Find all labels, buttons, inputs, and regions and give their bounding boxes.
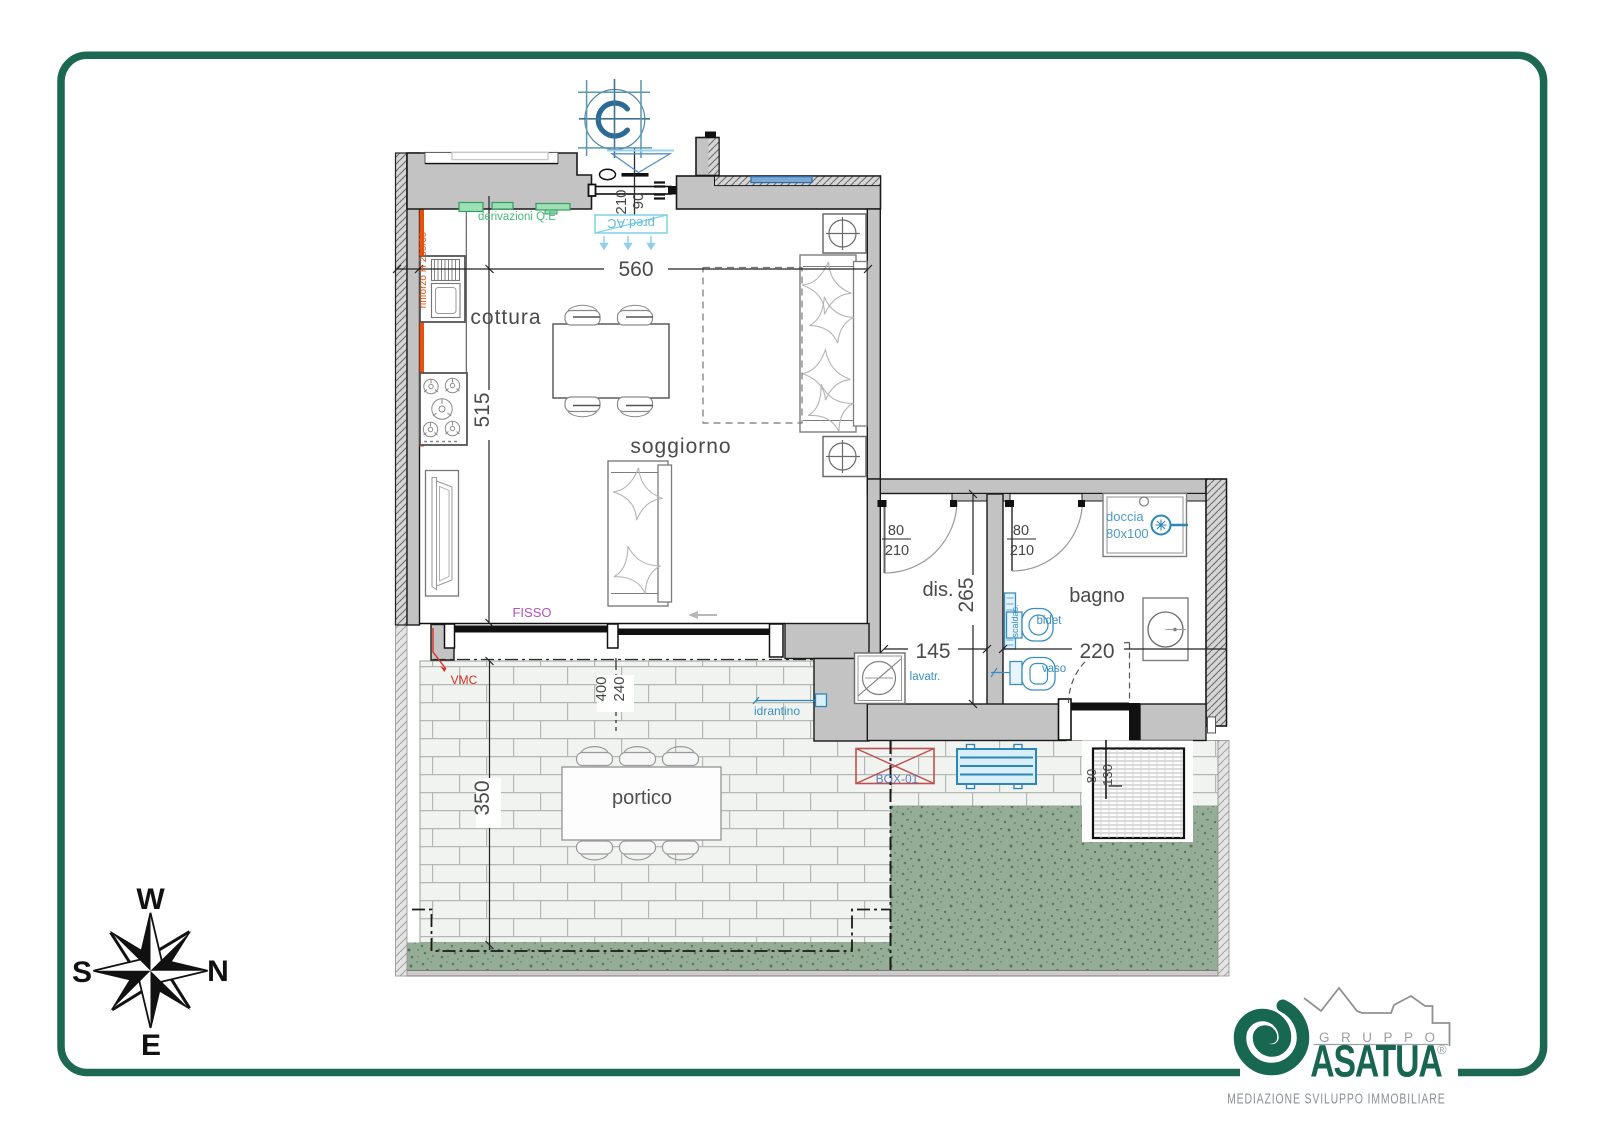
svg-text:80: 80 [1084, 769, 1099, 783]
svg-text:doccia: doccia [1106, 509, 1144, 524]
svg-text:560: 560 [618, 258, 653, 281]
svg-text:BOX-01: BOX-01 [876, 772, 919, 786]
svg-text:220: 220 [1079, 640, 1114, 663]
svg-text:cottura: cottura [470, 306, 541, 329]
svg-text:rinforzo H 200/30: rinforzo H 200/30 [418, 231, 429, 308]
svg-text:scaldas.: scaldas. [1010, 604, 1020, 637]
svg-text:80: 80 [1013, 523, 1029, 539]
svg-text:400: 400 [593, 676, 610, 701]
svg-text:210: 210 [885, 543, 909, 559]
svg-text:265: 265 [955, 577, 978, 612]
svg-text:145: 145 [915, 640, 950, 663]
svg-text:derivazioni Q.E: derivazioni Q.E [478, 211, 556, 223]
svg-text:VMC: VMC [451, 673, 478, 687]
svg-text:bidet: bidet [1037, 615, 1063, 627]
svg-text:soggiorno: soggiorno [630, 435, 731, 458]
svg-text:240: 240 [611, 676, 628, 701]
svg-text:350: 350 [471, 780, 494, 815]
svg-text:idrantino: idrantino [754, 704, 800, 718]
svg-text:dis.: dis. [922, 579, 953, 601]
svg-text:210: 210 [613, 189, 630, 214]
svg-text:90: 90 [630, 193, 647, 210]
svg-text:ASATUA: ASATUA [1310, 1037, 1442, 1087]
svg-text:pred.AC: pred.AC [607, 216, 655, 231]
svg-text:80: 80 [888, 523, 904, 539]
svg-text:FISSO: FISSO [512, 605, 551, 620]
svg-text:bagno: bagno [1069, 585, 1125, 607]
svg-text:N: N [207, 955, 229, 988]
svg-text:S: S [72, 956, 92, 989]
svg-text:515: 515 [471, 392, 494, 427]
svg-text:W: W [136, 883, 165, 916]
svg-text:vaso: vaso [1042, 663, 1066, 675]
svg-text:portico: portico [612, 787, 672, 809]
svg-text:80x100: 80x100 [1106, 526, 1149, 541]
svg-text:210: 210 [1010, 543, 1034, 559]
svg-text:E: E [141, 1029, 161, 1062]
svg-text:MEDIAZIONE SVILUPPO IMMOBILIAR: MEDIAZIONE SVILUPPO IMMOBILIARE [1227, 1090, 1445, 1107]
svg-text:lavatr.: lavatr. [910, 671, 941, 683]
svg-text:®: ® [1437, 1042, 1447, 1057]
svg-text:130: 130 [1100, 764, 1115, 786]
